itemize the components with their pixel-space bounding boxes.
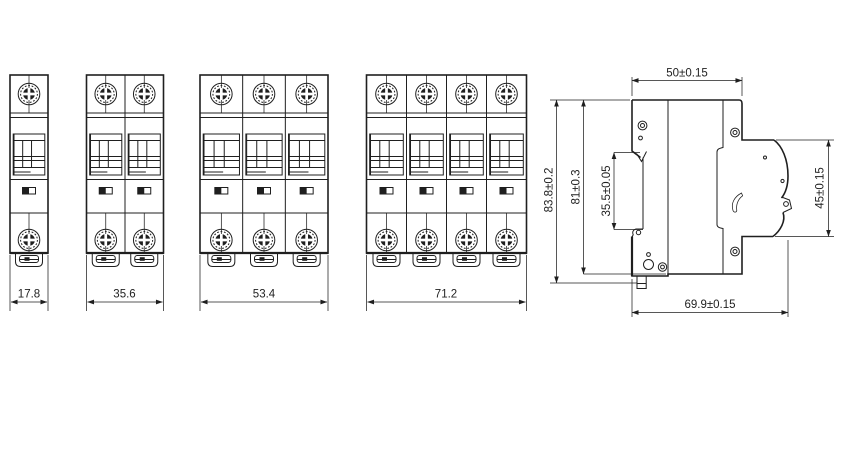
pole-module [200,75,243,267]
front-view-3pole [200,75,329,311]
status-indicator-window [420,188,433,195]
toggle-switch[interactable] [370,134,404,175]
din-rail-clip [208,253,235,267]
dim-top-width: 50±0.15 [632,68,742,97]
status-indicator-window [300,188,313,195]
technical-drawing-canvas: 17.8 35.6 53.4 71.2 [0,0,842,451]
status-indicator-window [258,188,271,195]
toggle-switch[interactable] [490,134,524,175]
pole-module [367,75,407,267]
rivet-back-top [638,121,647,130]
pin-back-top [639,136,643,140]
side-view: 50±0.15 69.9±0.15 83.8±0.2 81±0.3 35.5±0… [544,68,835,318]
toggle-switch[interactable] [410,134,444,175]
dim-overall-depth: 69.9±0.15 [632,240,788,317]
status-indicator-window [138,188,151,195]
din-rail-clip [293,253,320,267]
side-toggle-tip [782,197,792,213]
side-front-bulge-upper [774,140,788,198]
pole-module [243,75,286,267]
front-view-4pole [366,75,527,311]
toggle-switch[interactable] [246,134,282,175]
toggle-pivot-pin [784,202,789,207]
toggle-switch[interactable] [13,134,45,175]
side-bottom-outline [632,237,773,277]
pole-module [125,75,164,267]
din-rail-clip [493,253,520,267]
pole-module [447,75,487,267]
din-rail-clip [92,253,119,267]
pin-front-upper [764,156,767,159]
top-width-label: 50±0.15 [666,68,708,80]
din-rail-clip [413,253,440,267]
pole-module [10,75,48,267]
body-height-label: 81±0.3 [571,169,583,204]
rivet-bottom [658,263,666,271]
pole-module [285,75,328,267]
width-dimension-label-4pole: 71.2 [435,289,457,301]
front-height-label: 45±0.15 [815,167,827,209]
overall-height-label: 83.8±0.2 [544,168,556,213]
status-indicator-window [500,188,513,195]
width-dimension [367,255,527,311]
pole-module [487,75,527,267]
rivet-front-bottom [731,247,740,256]
width-dimension [200,255,328,311]
toggle-switch[interactable] [90,134,122,175]
status-indicator-window [215,188,228,195]
dim-overall-height: 83.8±0.2 [544,100,638,283]
front-view-2pole [86,75,164,311]
din-claw-pin [636,230,640,234]
toggle-switch[interactable] [289,134,325,175]
width-dimension-label-1pole: 17.8 [18,289,40,301]
curved-slot [732,193,742,212]
din-rail-clip [131,253,158,267]
din-rail-clip [373,253,400,267]
side-front-bulge-lower [773,213,784,237]
front-view-1pole [10,75,49,311]
latch-release-tab [637,276,646,289]
pin-front-mid [781,179,784,182]
pin-back-bottom [647,253,651,257]
toggle-switch[interactable] [450,134,484,175]
width-dimension-label-2pole: 35.6 [113,289,135,301]
dim-din-recess-height: 35.5±0.05 [601,153,643,230]
toggle-switch[interactable] [128,134,160,175]
toggle-switch[interactable] [203,134,239,175]
rivet-front-top [731,128,740,137]
din-hook-notch [637,152,647,162]
status-indicator-window [380,188,393,195]
hole-back-bottom [644,260,654,270]
dim-body-height: 81±0.3 [571,100,667,274]
mcb-dimension-drawing: 17.8 35.6 53.4 71.2 [0,0,842,451]
housing-parting-line-front [717,100,723,274]
din-rail-clip [251,253,278,267]
pole-module [87,75,126,267]
status-indicator-window [460,188,473,195]
status-indicator-window [99,188,112,195]
overall-depth-label: 69.9±0.15 [684,299,735,311]
pole-module [407,75,447,267]
front-views: 17.8 35.6 53.4 71.2 [10,75,528,311]
width-dimension [87,255,164,311]
width-dimension-label-3pole: 53.4 [253,289,276,301]
status-indicator-window [23,188,36,195]
side-top-outline [632,100,774,140]
din-rail-clip [453,253,480,267]
din-recess-height-label: 35.5±0.05 [601,165,613,216]
din-rail-clip [16,253,43,267]
